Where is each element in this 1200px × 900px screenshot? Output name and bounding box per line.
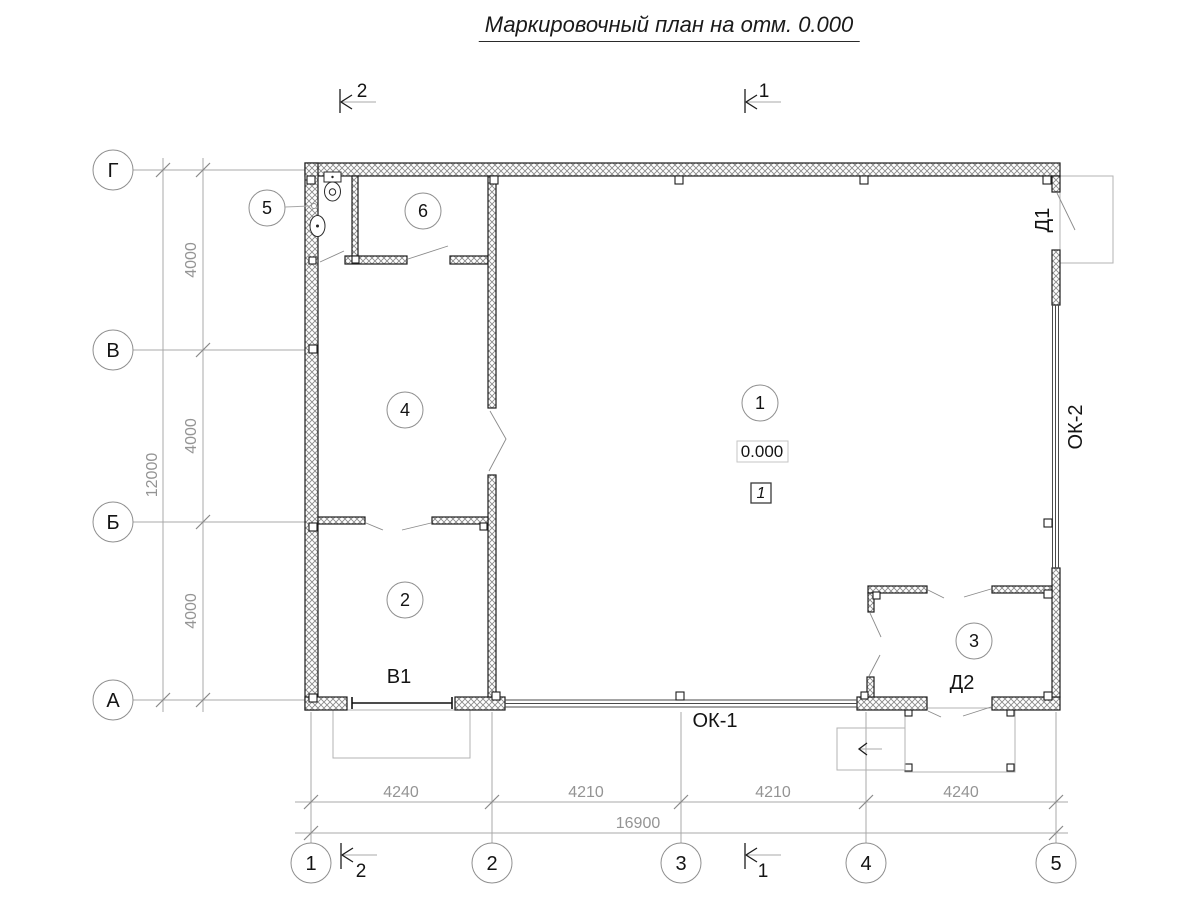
wall-right-segment [1052,250,1060,305]
door-swing-line [408,246,448,259]
window-strip2-label: ОК-2 [1065,405,1087,450]
door-swing-line [320,251,344,262]
porch-column-marker [1007,764,1014,771]
porches [333,176,1113,772]
porch-column-marker [905,764,912,771]
column-marker [490,176,498,184]
axis-label: 1 [305,853,316,875]
column-marker [1043,176,1051,184]
door2-label: Д2 [950,672,975,694]
room-number: 3 [969,631,979,651]
window-strip1-label: ОК-1 [693,710,738,732]
column-marker [676,692,684,700]
axis-label: В [106,340,119,362]
door-swing-line [366,523,383,530]
dim-text: 4240 [383,784,419,801]
floor-plan-drawing: 4000 4000 4000 12000 4240 4210 4210 4240… [0,0,1200,900]
walls [305,163,1060,710]
axis-label: Г [108,160,119,182]
dim-text: 4000 [183,242,200,278]
room-number: 5 [262,198,272,218]
dimensions: 4000 4000 4000 12000 4240 4210 4210 4240… [144,242,979,832]
column-marker [480,523,487,530]
wall-top [305,163,1060,176]
vestibule-wall [992,586,1052,593]
column-marker [860,176,868,184]
door-swing-line [489,411,506,471]
column-marker [1044,519,1052,527]
dim-text: 4210 [755,784,791,801]
partition-main [488,176,496,408]
room-number: 4 [400,400,410,420]
column-marker [492,692,500,700]
column-marker [309,257,316,264]
room-tag-leader-dot [312,204,317,209]
gate-label: В1 [387,666,411,688]
room-number: 6 [418,201,428,221]
dim-text-total: 16900 [616,815,661,832]
column-marker [1044,590,1052,598]
drawing-title: Маркировочный план на отм. 0.000 [479,12,860,42]
dim-text: 4000 [183,418,200,454]
section-number: 1 [759,81,770,102]
axis-label: Б [106,512,119,534]
column-marker [307,176,315,184]
axis-label: 2 [486,853,497,875]
axis-label: А [106,690,120,712]
section-number: 2 [357,81,368,102]
axis-grid [133,158,1068,843]
column-marker [352,256,359,263]
section-number: 1 [758,861,769,882]
door-swing-line [870,613,881,637]
door-swing-line [928,711,941,717]
room-number: 1 [755,393,765,413]
column-marker [1044,692,1052,700]
column-marker [309,694,317,702]
toilet-drain-icon [329,189,335,195]
wall-left [305,163,318,710]
partition-wc [352,176,358,258]
porch-outline-door2 [905,708,1015,772]
column-marker [675,176,683,184]
column-markers [307,176,1052,702]
section-number: 2 [356,861,367,882]
room-number: 2 [400,590,410,610]
dim-text-total: 12000 [144,453,161,498]
toilet-button-icon [331,176,333,178]
column-marker [309,345,317,353]
partition-axis-b [318,517,365,524]
column-marker [309,523,317,531]
axis-bubbles: Г В Б А 1 2 3 4 5 [93,150,1076,883]
door-swing-line [869,655,880,676]
axis-label: 3 [675,853,686,875]
floor-type-number: 1 [757,485,766,502]
axis-label: 5 [1050,853,1061,875]
drawing-title-text: Маркировочный план на отм. 0.000 [479,12,860,42]
porch-outline-door1 [1060,176,1113,263]
elevation-value: 0.000 [741,442,784,461]
section-marks: 2 1 2 1 [340,81,781,882]
porch-outline-gate [333,710,470,758]
dim-text: 4240 [943,784,979,801]
wall-right-segment [1052,568,1060,697]
wall-right-segment [1052,176,1060,192]
axis-label: 4 [860,853,871,875]
door-swing-line [928,590,944,598]
partition-rooms56 [450,256,488,264]
door-swing-line [402,523,431,530]
drawing-canvas: 4000 4000 4000 12000 4240 4210 4210 4240… [0,0,1200,900]
column-marker [861,692,868,699]
door1-label: Д1 [1032,208,1054,233]
sink-drain-icon [316,225,319,228]
dim-text: 4210 [568,784,604,801]
dim-text: 4000 [183,593,200,629]
column-marker [873,592,880,599]
partition-main [488,475,496,697]
door-swing-line [964,589,991,597]
